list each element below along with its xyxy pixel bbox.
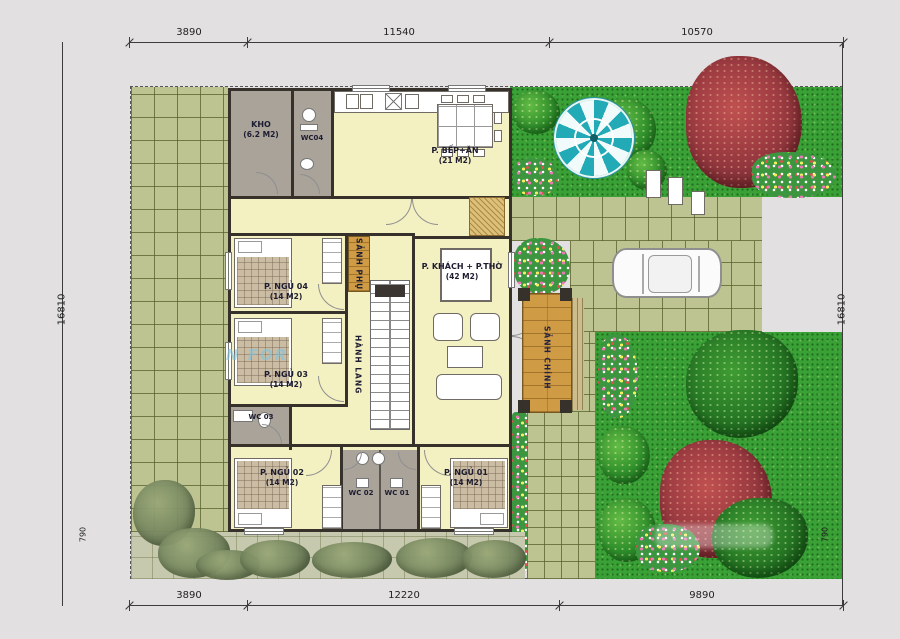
room-name: WC 01 <box>384 489 409 497</box>
flowerbed-icon <box>513 158 559 196</box>
dim-top-3: 10570 <box>667 27 727 38</box>
room-name: WC04 <box>301 134 324 142</box>
gate-opening <box>763 197 843 331</box>
room-label-living: P. KHÁCH + P.THỜ (42 M2) <box>412 262 512 281</box>
wall <box>231 404 345 407</box>
car-icon <box>612 248 722 298</box>
wall <box>231 311 345 314</box>
dim-right-sub: 790 <box>821 522 830 548</box>
dim-bottom-3: 9890 <box>672 590 732 601</box>
watermark-text: N FOR <box>226 346 288 364</box>
room-label-wc02: WC 02 <box>344 489 378 498</box>
sofa-icon <box>436 374 502 400</box>
chair-icon <box>441 95 453 103</box>
room-area: (14 M2) <box>240 292 332 301</box>
sink-icon <box>356 478 369 488</box>
armchair-icon <box>470 313 500 341</box>
room-name: P. NGỦ 04 <box>264 282 308 291</box>
flowerbed-icon <box>514 238 570 294</box>
staircase <box>370 280 410 430</box>
room-label-bed04: P. NGỦ 04 (14 M2) <box>240 282 332 301</box>
room-label-wc04: WC04 <box>294 134 330 143</box>
room-label-bed03: P. NGỦ 03 (14 M2) <box>240 370 332 389</box>
room-area: (14 M2) <box>420 478 512 487</box>
wall <box>291 91 294 196</box>
window-icon <box>454 528 494 535</box>
stove-icon <box>385 93 402 110</box>
sink-icon <box>390 478 403 488</box>
dim-top-2: 11540 <box>369 27 429 38</box>
coffee-table-icon <box>447 346 483 368</box>
room-area: (42 M2) <box>412 272 512 281</box>
room-name: SẢNH PHỤ <box>355 238 364 290</box>
counter-unit <box>405 94 419 109</box>
dining-table-icon <box>437 104 493 148</box>
chair-icon <box>473 95 485 103</box>
toilet-icon <box>302 108 316 122</box>
wardrobe-icon <box>322 318 342 364</box>
washer-icon <box>372 452 385 465</box>
sink-icon <box>360 94 373 109</box>
chair-icon <box>457 95 469 103</box>
garden-chair-icon <box>646 170 661 198</box>
room-label-wc03: WC 03 <box>238 413 284 422</box>
room-label-sanh-chinh: SẢNH CHÍNH <box>538 310 556 406</box>
room-label-kho: KHO (6.2 M2) <box>233 120 289 139</box>
porch-column <box>518 288 530 301</box>
window-icon <box>225 252 232 290</box>
stair-landing <box>375 285 405 297</box>
room-name: KHO <box>251 120 271 129</box>
dim-bottom-1: 3890 <box>159 590 219 601</box>
window-icon <box>244 528 284 535</box>
room-name: WC 03 <box>248 413 273 421</box>
room-name: HÀNH LANG <box>354 335 363 394</box>
dim-bottom-2: 12220 <box>374 590 434 601</box>
wall <box>228 233 415 236</box>
room-label-kitchen: P. BẾP+ĂN (21 M2) <box>412 146 498 165</box>
room-name: P. KHÁCH + P.THỜ <box>422 262 503 271</box>
side-entry-step <box>469 197 505 236</box>
stair-rail <box>389 281 391 429</box>
wall <box>228 444 512 447</box>
dim-line-bottom <box>130 605 844 606</box>
parasol-pole <box>590 134 598 142</box>
floor-plan-canvas: KHO (6.2 M2) WC04 P. BẾP+ĂN (21 M2) P. N… <box>0 0 900 639</box>
chair-icon <box>494 130 502 142</box>
wardrobe-icon <box>421 485 441 529</box>
room-label-bed01: P. NGỦ 01 (14 M2) <box>420 468 512 487</box>
dim-left-total: 16810 <box>57 292 68 328</box>
bush-icon <box>598 426 650 484</box>
toilet-tank <box>300 124 318 131</box>
wardrobe-icon <box>322 238 342 284</box>
bush-icon <box>512 90 560 134</box>
room-name: SẢNH CHÍNH <box>543 326 552 390</box>
window-icon <box>448 85 486 92</box>
room-name: WC 02 <box>348 489 373 497</box>
chair-icon <box>494 112 502 124</box>
room-area: (6.2 M2) <box>233 130 289 139</box>
room-area: (14 M2) <box>236 478 328 487</box>
sink-icon <box>300 158 314 170</box>
room-label-wc01: WC 01 <box>380 489 414 498</box>
window-icon <box>352 85 390 92</box>
driveway-band-tiles <box>510 197 762 241</box>
porch-column <box>560 288 572 301</box>
room-name: P. BẾP+ĂN <box>431 146 478 155</box>
room-label-sanh-phu: SẢNH PHỤ <box>349 234 369 294</box>
walkway-tiles <box>527 412 595 579</box>
flowerbed-icon <box>752 152 836 198</box>
garden-chair-icon <box>691 191 705 215</box>
dim-top-1: 3890 <box>159 27 219 38</box>
porch-column <box>560 400 572 413</box>
dim-left-sub: 790 <box>79 522 88 548</box>
car-rear-window <box>698 256 700 292</box>
dim-line-top <box>130 42 844 43</box>
wardrobe-icon <box>322 485 342 529</box>
room-name: P. NGỦ 03 <box>264 370 308 379</box>
pillow <box>238 321 262 333</box>
watermark-smudge <box>655 524 773 548</box>
room-name: P. NGỦ 02 <box>260 468 304 477</box>
pillow <box>238 241 262 253</box>
porch-steps <box>572 298 584 410</box>
room-label-bed02: P. NGỦ 02 (14 M2) <box>236 468 328 487</box>
sink-icon <box>346 94 359 109</box>
wall <box>415 236 512 239</box>
pillow <box>480 513 504 525</box>
dim-right-total: 16810 <box>837 292 848 328</box>
flowerbed-icon <box>598 334 638 418</box>
room-name: P. NGỦ 01 <box>444 468 488 477</box>
porch-column <box>518 400 530 413</box>
car-windshield <box>642 254 644 294</box>
pillow <box>238 513 262 525</box>
parasol-icon <box>556 100 632 176</box>
room-area: (21 M2) <box>412 156 498 165</box>
room-label-hanh-lang: HÀNH LANG <box>350 324 366 406</box>
room-area: (14 M2) <box>240 380 332 389</box>
wall <box>417 447 420 532</box>
car-roof <box>648 255 692 293</box>
garden-chair-icon <box>668 177 683 205</box>
armchair-icon <box>433 313 463 341</box>
